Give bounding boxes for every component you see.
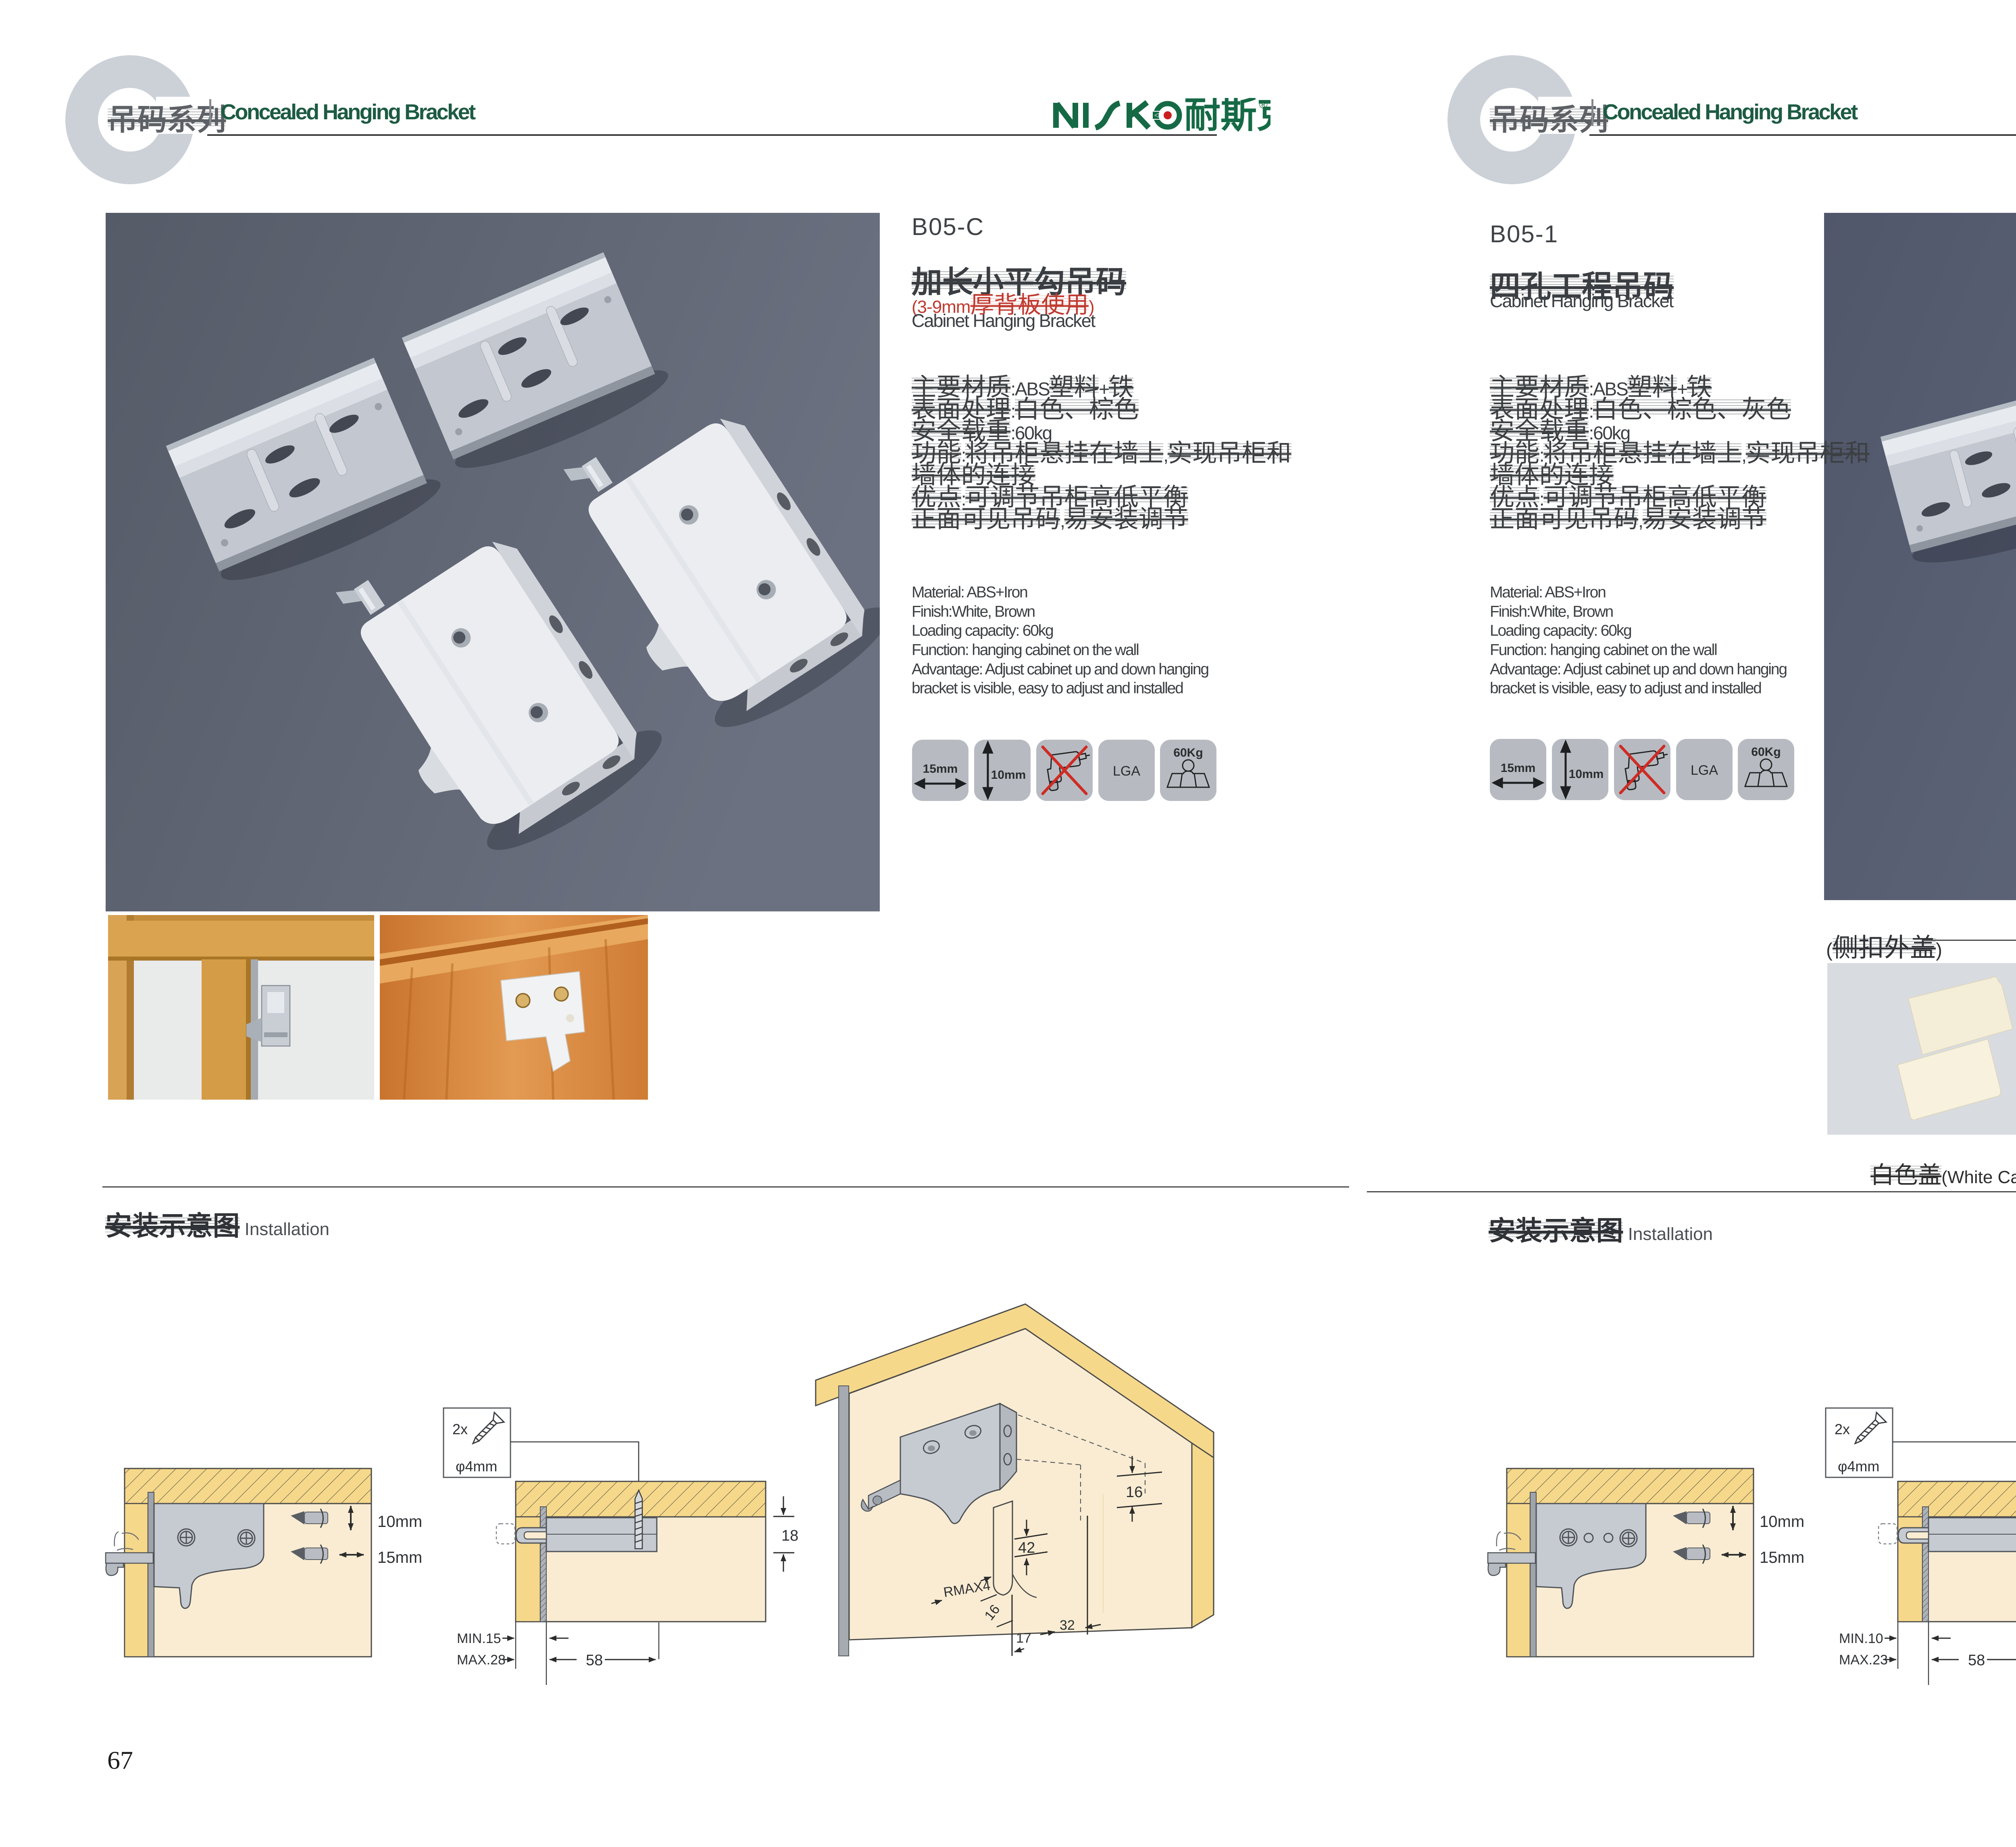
svg-text:17: 17 [1016,1631,1031,1646]
svg-text:MIN.10: MIN.10 [1839,1631,1883,1646]
svg-text:MIN.15: MIN.15 [457,1631,501,1646]
svg-text:15mm: 15mm [377,1549,422,1566]
svg-text:42: 42 [1018,1539,1035,1556]
svg-text:15mm: 15mm [923,762,958,776]
svg-text:φ4mm: φ4mm [1838,1458,1879,1475]
svg-text:MAX.23: MAX.23 [1839,1652,1888,1668]
svg-text:LGA: LGA [1691,763,1718,778]
svg-text:60Kg: 60Kg [1751,745,1781,759]
svg-text:60Kg: 60Kg [1173,746,1203,759]
svg-text:耐斯克: 耐斯克 [1184,98,1270,134]
svg-text:2x: 2x [452,1421,468,1437]
svg-text:MAX.28: MAX.28 [457,1652,506,1668]
svg-text:®: ® [1259,98,1268,111]
svg-text:10mm: 10mm [1569,768,1604,781]
svg-text:φ4mm: φ4mm [456,1458,497,1475]
svg-text:10mm: 10mm [991,768,1026,782]
svg-text:58: 58 [1968,1652,1985,1669]
svg-text:10mm: 10mm [1760,1513,1804,1531]
svg-text:15mm: 15mm [1501,761,1536,775]
svg-text:32: 32 [1060,1618,1075,1633]
svg-text:58: 58 [586,1652,603,1669]
svg-text:18: 18 [781,1527,798,1544]
svg-text:16: 16 [1126,1484,1143,1501]
svg-text:LGA: LGA [1113,763,1140,779]
svg-text:2x: 2x [1835,1421,1850,1437]
svg-text:10mm: 10mm [377,1513,422,1531]
svg-text:15mm: 15mm [1760,1549,1804,1566]
